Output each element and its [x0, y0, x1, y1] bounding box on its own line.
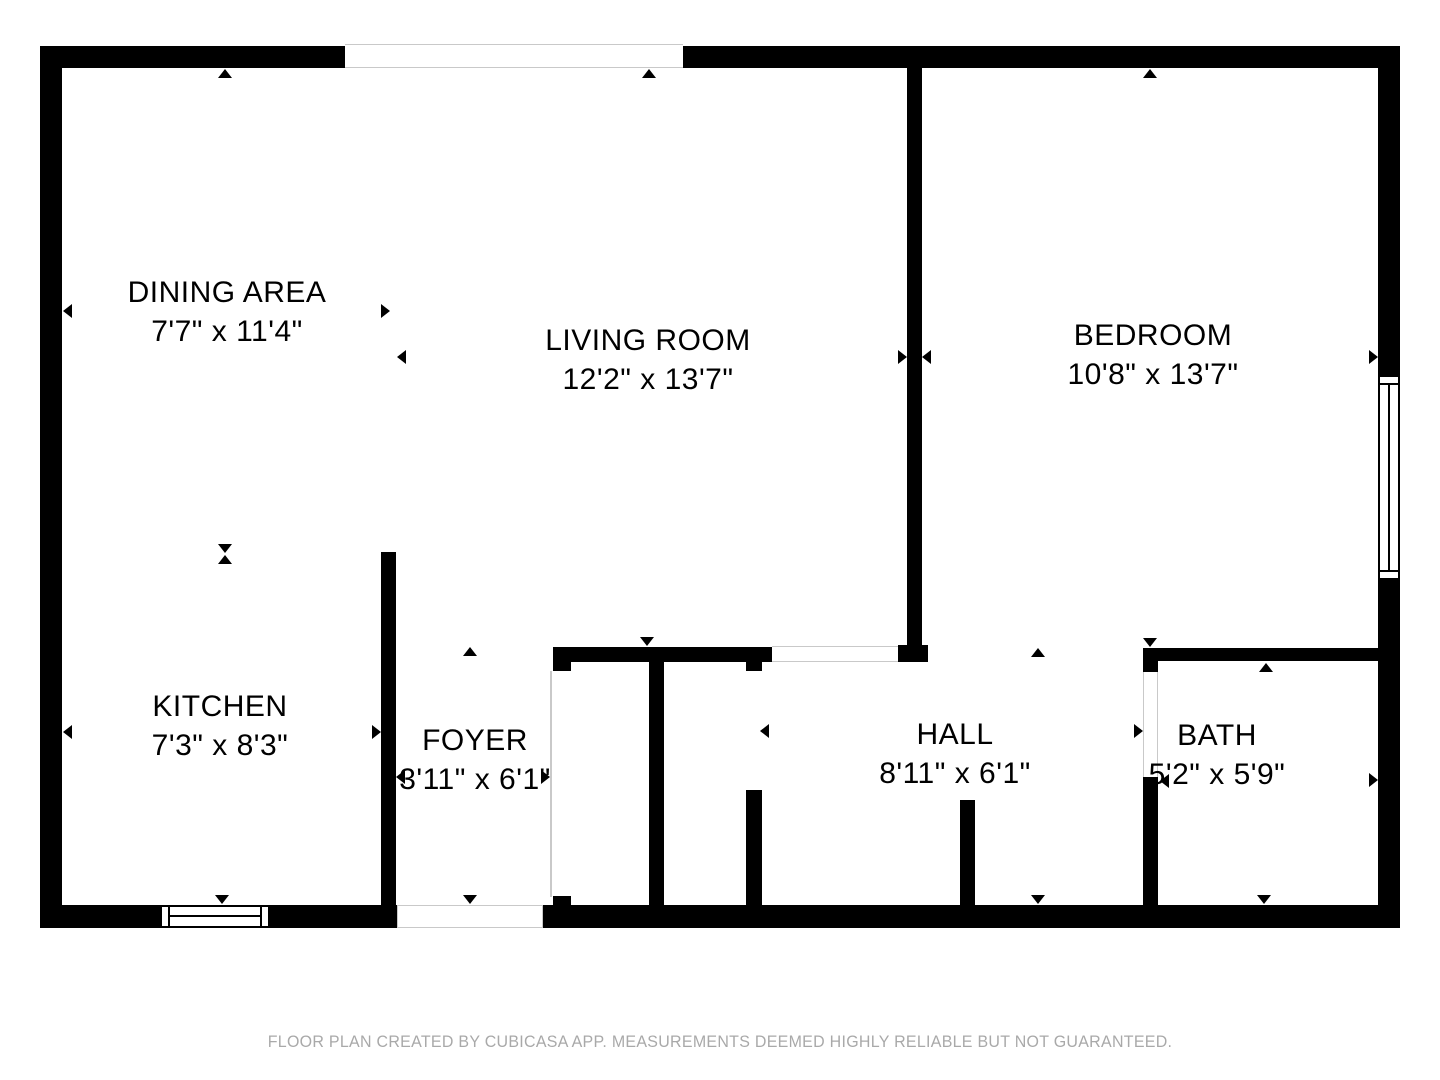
room-label-dining-area: DINING AREA 7'7" x 11'4" — [128, 273, 327, 351]
room-label-hall: HALL 8'11" x 6'1" — [879, 715, 1031, 793]
wall-bottom-segment-2 — [270, 905, 397, 928]
bedroom-window — [1378, 375, 1400, 580]
room-name: HALL — [879, 715, 1031, 754]
room-dimensions: 10'8" x 13'7" — [1067, 355, 1238, 394]
measure-arrow-down-icon — [215, 895, 229, 904]
wall-top-right-segment — [683, 46, 1400, 68]
measure-arrow-down-icon — [1257, 895, 1271, 904]
measure-arrow-up-icon — [463, 647, 477, 656]
wall-left — [40, 46, 62, 928]
measure-arrow-down-icon — [463, 895, 477, 904]
footer-disclaimer: FLOOR PLAN CREATED BY CUBICASA APP. MEAS… — [268, 1032, 1173, 1052]
wall-closet-left-jamb-top — [553, 662, 571, 671]
wall-bath-left-lower — [1143, 777, 1158, 908]
wall-living-bedroom-foot — [898, 645, 928, 662]
measure-arrow-left-icon — [760, 724, 769, 738]
wall-closet-right-jamb-top — [746, 662, 762, 671]
window-pane-line-icon — [170, 915, 260, 917]
measure-arrow-down-icon — [1031, 895, 1045, 904]
room-name: LIVING ROOM — [545, 321, 751, 360]
room-name: KITCHEN — [152, 687, 289, 726]
measure-arrow-right-icon — [372, 725, 381, 739]
measure-arrow-up-icon — [642, 69, 656, 78]
measure-arrow-right-icon — [1369, 773, 1378, 787]
wall-bottom-segment-1 — [40, 905, 160, 928]
room-name: BEDROOM — [1067, 316, 1238, 355]
measure-arrow-left-icon — [397, 350, 406, 364]
room-dimensions: 7'7" x 11'4" — [128, 312, 327, 351]
room-name: BATH — [1149, 716, 1286, 755]
room-dimensions: 12'2" x 13'7" — [545, 360, 751, 399]
wall-bath-top — [1143, 648, 1378, 661]
room-dimensions: 3'11" x 6'1" — [399, 760, 551, 799]
wall-closet-middle — [649, 662, 664, 908]
window-bar-icon — [260, 907, 262, 926]
measure-arrow-left-icon — [1160, 774, 1169, 788]
measure-arrow-right-icon — [381, 304, 390, 318]
floor-plan: DINING AREA 7'7" x 11'4" LIVING ROOM 12'… — [0, 0, 1440, 1080]
room-label-bath: BATH 5'2" x 5'9" — [1149, 716, 1286, 794]
wall-closet-top — [553, 647, 772, 662]
measure-arrow-right-icon — [898, 350, 907, 364]
wall-closet-right-lower — [746, 790, 762, 908]
measure-arrow-up-icon — [1143, 69, 1157, 78]
entry-door-opening — [397, 905, 543, 928]
wall-kitchen-foyer — [381, 552, 396, 912]
room-dimensions: 5'2" x 5'9" — [1149, 755, 1286, 794]
room-label-foyer: FOYER 3'11" x 6'1" — [399, 721, 551, 799]
measure-arrow-up-icon — [218, 555, 232, 564]
room-label-kitchen: KITCHEN 7'3" x 8'3" — [152, 687, 289, 765]
measure-arrow-right-icon — [1134, 724, 1143, 738]
wall-hall-stub — [960, 800, 975, 908]
measure-arrow-down-icon — [1143, 638, 1157, 647]
wall-bottom-segment-3 — [543, 905, 1400, 928]
room-dimensions: 8'11" x 6'1" — [879, 754, 1031, 793]
wall-living-bedroom-divider — [907, 68, 922, 647]
measure-arrow-down-icon — [640, 637, 654, 646]
measure-arrow-left-icon — [63, 304, 72, 318]
wall-closet-left-jamb-bottom — [553, 896, 571, 908]
measure-arrow-down-icon — [218, 544, 232, 553]
room-name: DINING AREA — [128, 273, 327, 312]
living-room-top-opening — [345, 44, 683, 68]
kitchen-window — [160, 905, 270, 928]
window-pane-line-icon — [1388, 385, 1390, 570]
measure-arrow-right-icon — [1369, 350, 1378, 364]
measure-arrow-left-icon — [63, 725, 72, 739]
window-bar-icon — [1380, 570, 1398, 572]
measure-arrow-left-icon — [922, 350, 931, 364]
room-label-bedroom: BEDROOM 10'8" x 13'7" — [1067, 316, 1238, 394]
room-name: FOYER — [399, 721, 551, 760]
measure-arrow-up-icon — [1259, 663, 1273, 672]
measure-arrow-up-icon — [1031, 648, 1045, 657]
measure-arrow-up-icon — [218, 69, 232, 78]
room-label-living-room: LIVING ROOM 12'2" x 13'7" — [545, 321, 751, 399]
wall-top-left-segment — [40, 46, 345, 68]
room-dimensions: 7'3" x 8'3" — [152, 726, 289, 765]
wall-bath-left-jamb-top — [1143, 661, 1158, 672]
hall-living-opening — [772, 646, 898, 662]
measure-arrow-left-icon — [396, 770, 405, 784]
measure-arrow-right-icon — [541, 770, 550, 784]
